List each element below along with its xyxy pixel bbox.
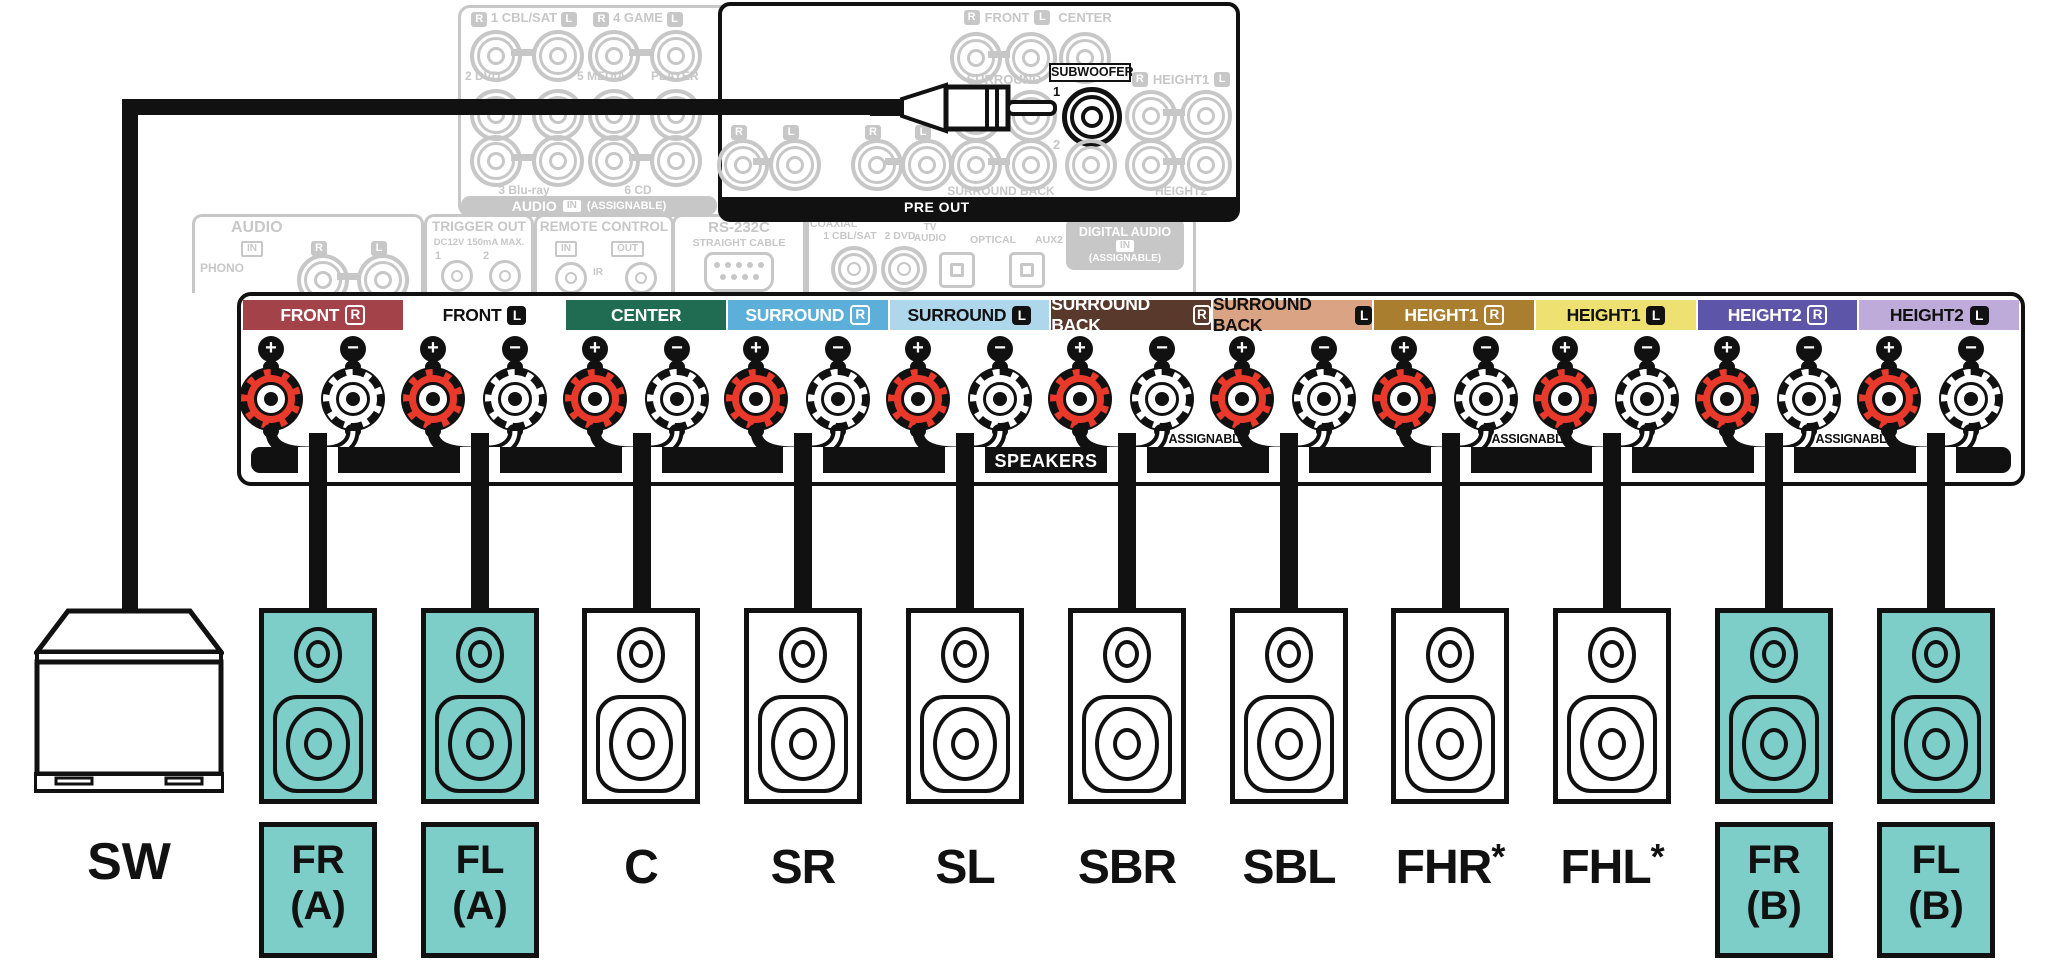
jack-link [988, 158, 1010, 165]
optical-jack-2[interactable] [1009, 252, 1045, 288]
jack-link [988, 51, 1010, 58]
woofer-icon [596, 695, 686, 793]
woofer-icon [1567, 695, 1657, 793]
l-badge: L [667, 12, 683, 27]
speaker-cable [309, 433, 327, 613]
terminal-label-front-r: FRONTR [243, 300, 403, 330]
jack-link [511, 154, 535, 161]
in-badge: IN [1116, 240, 1134, 252]
woofer-icon [1729, 695, 1819, 793]
r-badge: R [964, 10, 980, 25]
tweeter-icon [1912, 627, 1960, 683]
speaker-cable [794, 433, 812, 613]
rca-jack[interactable] [650, 89, 702, 141]
plus-terminal-mark: + [1552, 336, 1578, 362]
rca-jack[interactable] [588, 89, 640, 141]
plus-terminal-mark: + [743, 336, 769, 362]
minus-terminal-mark: − [1634, 336, 1660, 362]
subwoofer-2-number: 2 [1053, 137, 1060, 152]
phono-panel: AUDIO IN R L PHONO [192, 214, 424, 293]
woofer-icon [758, 695, 848, 793]
binding-post-positive[interactable] [1695, 367, 1759, 431]
trigger-jack-1[interactable] [441, 260, 473, 292]
terminal-label-surround-r: SURROUNDR [728, 300, 888, 330]
subwoofer-jack-1[interactable] [1062, 87, 1122, 147]
tv-audio-label: TVAUDIO [910, 222, 950, 244]
rca-jack[interactable] [470, 89, 522, 141]
r-badge: R [471, 12, 487, 27]
jack-link [885, 158, 905, 165]
speaker-front-r-b [1715, 608, 1833, 804]
terminal-label-center: CENTER [566, 300, 726, 330]
trigger-out-subtitle: DC12V 150mA MAX. [427, 237, 531, 248]
pre-out-jack[interactable] [851, 139, 903, 191]
phono-label: PHONO [200, 261, 244, 275]
pre-out-surround-back-label: SURROUND BACK [926, 184, 1076, 198]
input-label-dvd: 2 DVD [465, 69, 500, 83]
minus-terminal-mark: − [1311, 336, 1337, 362]
input-label-media: 5 MEDIA [577, 69, 626, 83]
rca-jack[interactable] [588, 135, 640, 187]
tweeter-icon [1426, 627, 1474, 683]
tweeter-icon [456, 627, 504, 683]
woofer-icon [1082, 695, 1172, 793]
trigger-2-label: 2 [483, 250, 489, 262]
label-front-height-r: FHR* [1369, 836, 1531, 895]
coaxial-jack-1[interactable] [831, 246, 877, 292]
speaker-center [582, 608, 700, 804]
pre-out-jack[interactable] [1180, 90, 1232, 142]
plus-terminal-mark: + [258, 336, 284, 362]
plus-terminal-mark: + [1876, 336, 1902, 362]
woofer-icon [273, 695, 363, 793]
subwoofer-cable-vertical [122, 99, 138, 613]
tweeter-icon [617, 627, 665, 683]
minus-terminal-mark: − [825, 336, 851, 362]
trigger-out-panel: TRIGGER OUT DC12V 150mA MAX. 1 2 [424, 214, 534, 293]
speaker-front-l-b [1877, 608, 1995, 804]
binding-post-negative[interactable] [1615, 367, 1679, 431]
label-front-l-a: FL(A) [421, 822, 539, 958]
label-surround-r: SR [722, 836, 884, 895]
plus-terminal-mark: + [582, 336, 608, 362]
jack-link [337, 273, 361, 280]
tweeter-icon [941, 627, 989, 683]
binding-post-negative[interactable] [806, 367, 870, 431]
binding-post-positive[interactable] [1210, 367, 1274, 431]
terminal-label-surround-l: SURROUNDL [890, 300, 1050, 330]
binding-post-positive[interactable] [724, 367, 788, 431]
remote-control-title: REMOTE CONTROL [537, 219, 671, 234]
woofer-icon [1244, 695, 1334, 793]
in-badge: IN [241, 241, 263, 257]
label-surround-back-l: SBL [1208, 836, 1370, 895]
binding-post-negative[interactable] [1130, 367, 1194, 431]
pre-out-height2-label: HEIGHT2 [1121, 184, 1241, 198]
jack-link [629, 154, 653, 161]
plus-terminal-mark: + [1391, 336, 1417, 362]
rca-plug[interactable] [870, 80, 1070, 136]
remote-in-jack[interactable] [555, 262, 587, 294]
input-label-game: R 4 GAME L [575, 10, 701, 27]
speaker-front-height-r [1391, 608, 1509, 804]
phono-panel-title: AUDIO [231, 219, 283, 237]
tweeter-icon [779, 627, 827, 683]
speaker-front-height-l [1553, 608, 1671, 804]
label-front-height-l: FHL* [1531, 836, 1693, 895]
woofer-icon [1405, 695, 1495, 793]
label-center: C [560, 836, 722, 895]
minus-terminal-mark: − [340, 336, 366, 362]
label-surround-back-r: SBR [1046, 836, 1208, 895]
minus-terminal-mark: − [987, 336, 1013, 362]
binding-post-negative[interactable] [1292, 367, 1356, 431]
minus-terminal-mark: − [1796, 336, 1822, 362]
rca-jack[interactable] [470, 135, 522, 187]
speaker-cable [956, 433, 974, 613]
terminal-label-height1-l: HEIGHT1L [1536, 300, 1696, 330]
minus-terminal-mark: − [502, 336, 528, 362]
binding-post-negative[interactable] [968, 367, 1032, 431]
binding-post-positive[interactable] [239, 367, 303, 431]
l-badge: L [1214, 72, 1230, 87]
jack-link [629, 49, 653, 56]
speaker-surround-back-r [1068, 608, 1186, 804]
terminal-label-front-l: FRONTL [405, 300, 565, 330]
tweeter-icon [1588, 627, 1636, 683]
speaker-cable [1765, 433, 1783, 613]
tweeter-icon [1265, 627, 1313, 683]
binding-post-positive[interactable] [886, 367, 950, 431]
pre-out-bar: PRE OUT [722, 197, 1236, 218]
assignable-label-surround-back: ASSIGNABLE [1143, 432, 1273, 446]
minus-terminal-mark: − [1473, 336, 1499, 362]
tweeter-icon [1750, 627, 1798, 683]
terminal-label-surround-back-r: SURROUND BACKR [1051, 300, 1211, 330]
jack-link [1163, 109, 1185, 116]
binding-post-positive[interactable] [1857, 367, 1921, 431]
label-surround-l: SL [884, 836, 1046, 895]
minus-terminal-mark: − [1149, 336, 1175, 362]
plus-terminal-mark: + [1714, 336, 1740, 362]
binding-post-negative[interactable] [1939, 367, 2003, 431]
speaker-front-r-a [259, 608, 377, 804]
digital-audio-header: DIGITAL AUDIO IN (ASSIGNABLE) [1066, 218, 1184, 270]
plus-terminal-mark: + [1067, 336, 1093, 362]
tweeter-icon [294, 627, 342, 683]
terminal-label-height2-r: HEIGHT2R [1698, 300, 1858, 330]
in-badge: IN [563, 200, 581, 212]
assignable-label-height1: ASSIGNABLE [1466, 432, 1596, 446]
pre-out-jack[interactable] [717, 139, 769, 191]
speaker-cable [1603, 433, 1621, 613]
coaxial-jack-2[interactable] [881, 246, 927, 292]
terminal-label-height2-l: HEIGHT2L [1859, 300, 2019, 330]
subwoofer-cable-horizontal [122, 99, 902, 115]
terminal-label-surround-back-l: SURROUND BACKL [1213, 300, 1373, 330]
jack-link [1163, 158, 1185, 165]
jack-link [753, 158, 773, 165]
woofer-icon [435, 695, 525, 793]
label-front-l-b: FL(B) [1877, 822, 1995, 958]
l-badge: L [783, 125, 799, 140]
optical-jack-1[interactable] [939, 252, 975, 288]
speaker-surround-r [744, 608, 862, 804]
tweeter-icon [1103, 627, 1151, 683]
woofer-icon [920, 695, 1010, 793]
speaker-cable [633, 433, 651, 613]
speaker-connection-diagram: R 1 CBL/SAT L R 4 GAME L 2 DVD 5 MEDIA P… [0, 0, 2045, 962]
speaker-cable [1280, 433, 1298, 613]
r-channel-badge: R [850, 305, 870, 325]
speaker-cable [1927, 433, 1945, 613]
pre-out-height1-label: R HEIGHT1 L [1121, 72, 1241, 87]
woofer-icon [1891, 695, 1981, 793]
l-channel-badge: L [1970, 306, 1989, 325]
r-channel-badge: R [1484, 305, 1504, 325]
plus-terminal-mark: + [1229, 336, 1255, 362]
rs232c-panel: RS-232C STRAIGHT CABLE [672, 214, 806, 293]
trigger-1-label: 1 [435, 250, 441, 262]
rca-jack[interactable] [532, 89, 584, 141]
r-badge: R [1132, 72, 1148, 87]
trigger-jack-2[interactable] [489, 260, 521, 292]
speaker-cable [1442, 433, 1460, 613]
binding-post-negative[interactable] [1777, 367, 1841, 431]
r-badge: R [593, 12, 609, 27]
terminal-label-height1-r: HEIGHT1R [1374, 300, 1534, 330]
rca-jack[interactable] [650, 135, 702, 187]
binding-post-positive[interactable] [401, 367, 465, 431]
label-front-r-b: FR(B) [1715, 822, 1833, 958]
binding-post-positive[interactable] [1372, 367, 1436, 431]
subwoofer-jack-2[interactable] [1065, 139, 1117, 191]
speaker-cable [471, 433, 489, 613]
optical-label: OPTICAL [958, 234, 1028, 246]
binding-post-negative[interactable] [483, 367, 547, 431]
remote-out-jack[interactable] [625, 262, 657, 294]
pre-out-center-label: CENTER [1025, 10, 1145, 25]
rs232c-subtitle: STRAIGHT CABLE [675, 237, 803, 249]
terminal-label-bands: FRONTR FRONTL CENTER SURROUNDR SURROUNDL… [243, 300, 2019, 330]
r-channel-badge: R [1193, 305, 1211, 325]
jack-link [511, 49, 535, 56]
l-channel-badge: L [1355, 306, 1372, 325]
binding-post-positive[interactable] [1048, 367, 1112, 431]
speaker-surround-back-l [1230, 608, 1348, 804]
pre-out-jack[interactable] [769, 139, 821, 191]
speaker-surround-l [906, 608, 1024, 804]
binding-post-positive[interactable] [1533, 367, 1597, 431]
l-channel-badge: L [507, 306, 526, 325]
subwoofer-label: SW [34, 832, 224, 892]
speaker-cable [1118, 433, 1136, 613]
r-channel-badge: R [1807, 305, 1827, 325]
ir-label: IR [593, 267, 603, 278]
input-label-bluray: 3 Blu-ray [461, 183, 587, 197]
r-channel-badge: R [345, 305, 365, 325]
binding-post-negative[interactable] [645, 367, 709, 431]
l-channel-badge: L [1646, 306, 1665, 325]
out-badge: OUT [611, 241, 644, 257]
speaker-front-l-a [421, 608, 539, 804]
trigger-out-title: TRIGGER OUT [427, 219, 531, 234]
rs232c-connector[interactable] [704, 252, 774, 292]
binding-post-positive[interactable] [563, 367, 627, 431]
rca-jack[interactable] [532, 135, 584, 187]
r-badge: R [731, 125, 747, 140]
input-label-cbl-sat: R 1 CBL/SAT L [461, 10, 587, 27]
binding-post-negative[interactable] [321, 367, 385, 431]
input-label-cd: 6 CD [575, 183, 701, 197]
minus-terminal-mark: − [664, 336, 690, 362]
in-badge: IN [555, 241, 577, 257]
plus-terminal-mark: + [905, 336, 931, 362]
audio-in-bottom-bar: AUDIO IN (ASSIGNABLE) [461, 196, 717, 215]
remote-control-panel: REMOTE CONTROL IN OUT IR [534, 214, 674, 293]
pre-out-jack[interactable] [1125, 90, 1177, 142]
speaker-subwoofer [34, 608, 224, 804]
plus-terminal-mark: + [420, 336, 446, 362]
minus-terminal-mark: − [1958, 336, 1984, 362]
speakers-label: SPEAKERS [966, 451, 1126, 472]
l-channel-badge: L [1012, 306, 1031, 325]
input-label-player: PLAYER [651, 69, 699, 83]
label-front-r-a: FR(A) [259, 822, 377, 958]
binding-post-negative[interactable] [1454, 367, 1518, 431]
assignable-label-height2: ASSIGNABLE [1790, 432, 1920, 446]
